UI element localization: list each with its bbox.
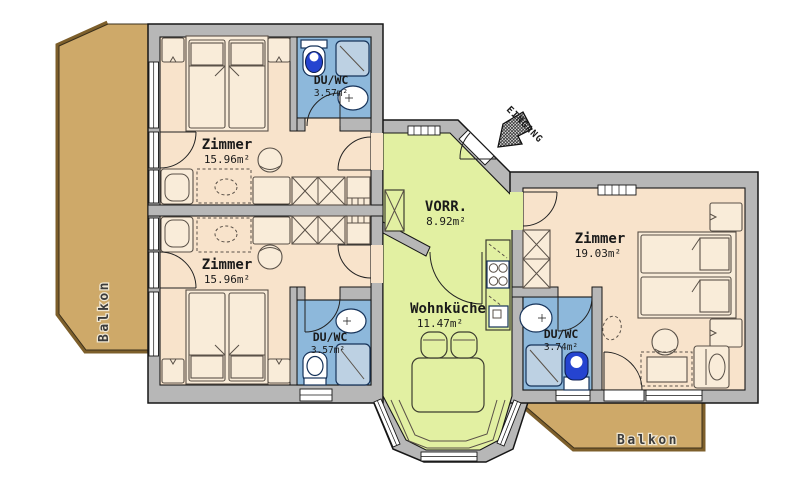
- area-wohnkueche: 11.47m²: [417, 317, 463, 330]
- floor-plan: Balkon Balkon: [0, 0, 800, 501]
- wall-between-left-rooms: [148, 205, 383, 216]
- area-zimmer-bottom-left: 15.96m²: [204, 273, 250, 286]
- nightstand: [268, 38, 290, 62]
- area-duwc-right: 3.74m²: [544, 342, 578, 353]
- area-vorraum: 8.92m²: [426, 215, 466, 228]
- chair: [451, 332, 477, 358]
- pillow: [700, 238, 729, 270]
- area-zimmer-right: 19.03m²: [575, 247, 621, 260]
- desk: [253, 217, 290, 244]
- wall-duwc-top-bottom-a: [297, 118, 305, 131]
- nightstand: [710, 319, 742, 347]
- label-zimmer-bottom-left: Zimmer: [202, 257, 253, 273]
- label-duwc-bottom: DU/WC: [313, 330, 348, 344]
- kitchen-sink: [489, 306, 508, 327]
- area-duwc-bottom: 3.57m²: [311, 345, 345, 356]
- pillow: [191, 43, 223, 65]
- area-duwc-top: 3.57m²: [314, 88, 348, 99]
- pillow: [231, 356, 263, 378]
- radiator: [598, 185, 636, 195]
- chair: [258, 148, 282, 172]
- nightstand: [710, 203, 742, 231]
- dining-table: [412, 358, 484, 412]
- door-gap-zimmer-bottom-left: [371, 245, 383, 283]
- pillow: [231, 43, 263, 65]
- balcony-right-label: Balkon: [617, 433, 679, 448]
- wall-duwc-top-left: [290, 37, 297, 131]
- area-zimmer-top-left: 15.96m²: [204, 153, 250, 166]
- window-duwc-bottom: [300, 389, 332, 401]
- balcony-left-label: Balkon: [97, 280, 112, 342]
- wall-duwc-top-bottom-b: [340, 118, 371, 131]
- toilet-tank: [304, 378, 326, 385]
- pillow: [191, 356, 223, 378]
- label-duwc-top: DU/WC: [314, 73, 349, 87]
- label-vorraum: VORR.: [425, 199, 467, 215]
- floorplan-canvas: Balkon Balkon: [0, 0, 800, 501]
- door-gap-zimmer-right: [510, 192, 523, 230]
- label-wohnkueche: Wohnküche: [410, 301, 486, 317]
- chair: [421, 332, 447, 358]
- desk: [647, 357, 687, 382]
- wall-duwc-right-side: [592, 287, 602, 390]
- door-gap-zimmer-top-left: [371, 133, 383, 170]
- label-zimmer-right: Zimmer: [575, 231, 626, 247]
- balcony-left: Balkon: [59, 24, 152, 350]
- wall-duwc-bottom-left: [290, 287, 297, 385]
- nightstand: [268, 359, 290, 383]
- label-zimmer-top-left: Zimmer: [202, 137, 253, 153]
- nightstand: [162, 359, 184, 383]
- chair: [652, 329, 678, 355]
- pillow: [700, 280, 729, 312]
- chair: [258, 245, 282, 269]
- desk: [253, 177, 290, 204]
- bench: [694, 346, 729, 388]
- wall-duwc-bottom-top-a: [297, 287, 305, 300]
- entrance-marker: EINGANG: [498, 104, 545, 147]
- balcony-right: Balkon: [518, 400, 702, 448]
- wall-duwc-bottom-top-b: [340, 287, 371, 300]
- label-duwc-right: DU/WC: [544, 327, 579, 341]
- windows-right-bottom-wall: [556, 390, 702, 401]
- nightstand: [162, 38, 184, 62]
